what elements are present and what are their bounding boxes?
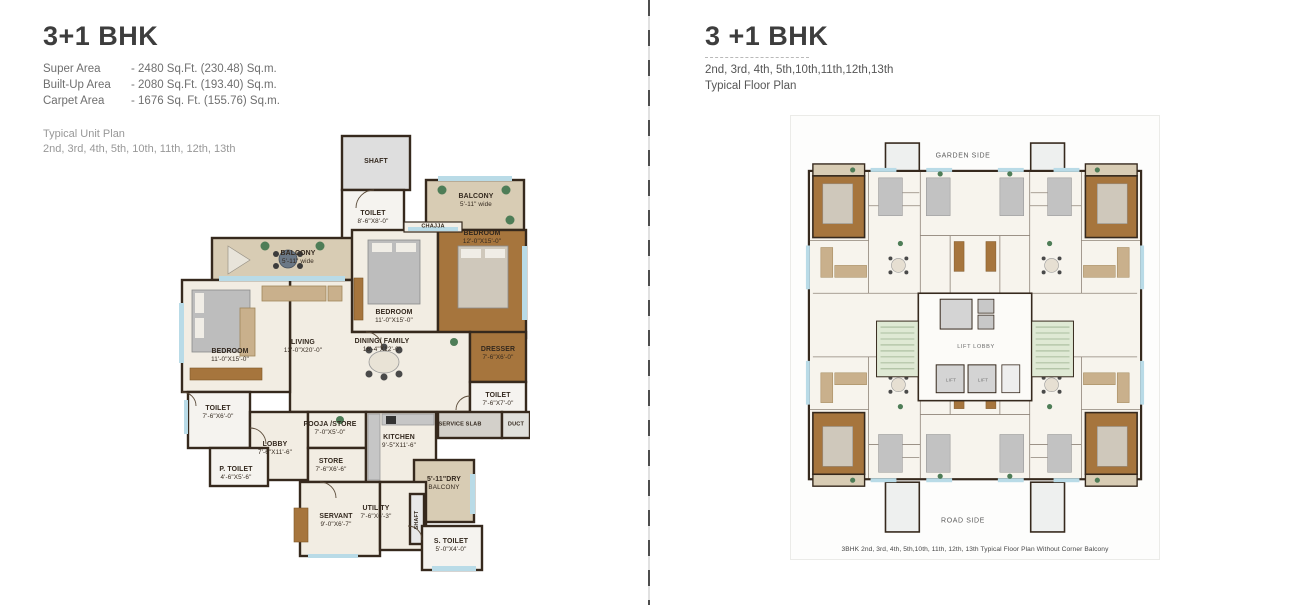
lift-lobby-label: LIFT LOBBY: [957, 344, 995, 350]
super-area-row: Super Area - 2480 Sq.Ft. (230.48) Sq.m.: [43, 61, 383, 77]
right-plan-header: 3 +1 BHK 2nd, 3rd, 4th, 5th,10th,11th,12…: [705, 22, 1045, 94]
room-label-servant: SERVANT9'-0"X6'-7": [319, 513, 352, 529]
room-label-bedroom-mid: BEDROOM11'-0"X15'-0": [375, 309, 413, 325]
room-label-kitchen: KITCHEN9'-5"X11'-6": [382, 434, 416, 450]
carpet-area-label: Carpet Area: [43, 93, 131, 109]
room-label-toilet-right: TOILET7'-6"X7'-0": [483, 392, 514, 408]
room-label-shaft-small: SHAFT: [414, 511, 420, 530]
typical-floor-plan-drawing: [791, 116, 1159, 559]
road-side-label: ROAD SIDE: [941, 518, 985, 525]
room-label-chajja: CHAJJA: [421, 224, 444, 231]
room-label-duct: DUCT: [508, 422, 524, 429]
builtup-area-value: - 2080 Sq.Ft. (193.40) Sq.m.: [131, 77, 277, 93]
carpet-area-value: - 1676 Sq. Ft. (155.76) Sq.m.: [131, 93, 280, 109]
room-label-lobby: LOBBY7'-6"X11'-6": [258, 441, 292, 457]
room-label-dresser: DRESSER7'-6"X6'-0": [481, 346, 515, 362]
center-divider-line: [648, 0, 650, 605]
room-label-utility: UTILITY7'-6"X6'-3": [361, 505, 392, 521]
room-label-store: STORE7'-6"X6'-6": [316, 458, 347, 474]
super-area-label: Super Area: [43, 61, 131, 77]
room-label-bedroom-left: BEDROOM11'-0"X15'-0": [211, 348, 249, 364]
room-label-toilet-top: TOILET8'-6"X8'-0": [358, 210, 389, 226]
floors-list: 2nd, 3rd, 4th, 5th,10th,11th,12th,13th T…: [705, 62, 1045, 94]
room-label-shaft: SHAFT: [364, 158, 388, 166]
room-label-toilet-left: TOILET7'-6"X6'-0": [203, 405, 234, 421]
builtup-area-label: Built-Up Area: [43, 77, 131, 93]
room-label-p-toilet: P. TOILET4'-6"X5'-6": [219, 466, 252, 482]
area-details: Super Area - 2480 Sq.Ft. (230.48) Sq.m. …: [43, 61, 383, 109]
room-label-dry-balcony: 5'-11"DRYBALCONY: [427, 476, 461, 492]
garden-side-label: GARDEN SIDE: [936, 153, 991, 160]
room-label-dining: DINING/ FAMILY16'-4"X12'-0": [355, 338, 410, 354]
room-label-pooja: POOJA /STORE7'-0"X5'-0": [303, 421, 356, 437]
floors-line: 2nd, 3rd, 4th, 5th,10th,11th,12th,13th: [705, 62, 1045, 78]
room-label-bedroom-right: BEDROOM12'-0"X15'-0": [463, 230, 501, 246]
room-label-balcony-right: BALCONY5'-11" wide: [458, 193, 493, 209]
lift1-label: LIFT: [946, 378, 956, 383]
room-label-service-slab: SERVICE SLAB: [438, 422, 481, 429]
room-label-balcony-left: BALCONY5'-11" wide: [280, 250, 315, 266]
room-label-s-toilet: S. TOILET5'-0"X4'-0": [434, 538, 468, 554]
carpet-area-row: Carpet Area - 1676 Sq. Ft. (155.76) Sq.m…: [43, 93, 383, 109]
lift2-label: LIFT: [978, 378, 988, 383]
typical-floor-plan: GARDEN SIDE ROAD SIDE LIFT LOBBY LIFT LI…: [790, 115, 1160, 560]
right-title: 3 +1 BHK: [705, 22, 1045, 52]
room-label-living: LIVING13'-0"X20'-0": [284, 339, 322, 355]
builtup-area-row: Built-Up Area - 2080 Sq.Ft. (193.40) Sq.…: [43, 77, 383, 93]
title-underline: [705, 57, 809, 58]
left-title: 3+1 BHK: [43, 22, 383, 52]
unit-floor-plan: SHAFT TOILET8'-6"X8'-0" CHAJJA BALCONY5'…: [170, 128, 530, 573]
plan-caption: 3BHK 2nd, 3rd, 4th, 5th,10th, 11th, 12th…: [791, 546, 1159, 553]
super-area-value: - 2480 Sq.Ft. (230.48) Sq.m.: [131, 61, 277, 77]
floor-plan-subtitle: Typical Floor Plan: [705, 78, 1045, 94]
